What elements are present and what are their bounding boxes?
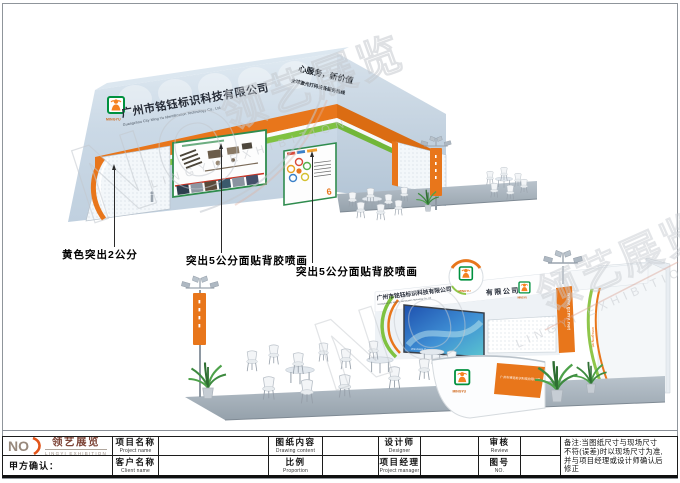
design-sheet: 6 MINGYU 广州市铭钰标识科技有限公司 Guangzhou City Mi… (0, 0, 680, 483)
label-designer: 设计师 Designer (379, 437, 421, 456)
value-proportion (323, 456, 379, 475)
label-proportion: 比例 Proportion (269, 456, 323, 475)
notes-cell: 备注:当图纸尺寸与现场尺寸 不符(误差)时以现场尺寸为准, 并与项目经理或设计师… (561, 437, 677, 475)
booth-renderings: 6 MINGYU 广州市铭钰标识科技有限公司 Guangzhou City Mi… (0, 0, 680, 430)
party-a-confirm: 甲方确认： (3, 456, 113, 475)
value-drawing-no (521, 456, 561, 475)
light-totem-bottom (181, 276, 226, 399)
label-project-name: 项目名称 Project name (113, 437, 159, 456)
annotation-label-1: 黄色突出2公分 (62, 247, 138, 262)
mingyu-logo-fascia (519, 282, 530, 293)
value-designer (421, 437, 479, 456)
label-review: 审核 Review (479, 437, 521, 456)
title-block: NO 领艺展览 LINGYI EXHIBITION 项目名称 Project n… (2, 436, 678, 478)
brand-cn: 领艺展览 (52, 437, 100, 448)
logo-text-fascia: MINGYU (518, 297, 528, 300)
value-review (521, 437, 561, 456)
leader-line-1 (114, 170, 115, 247)
leader-line-3 (312, 157, 313, 263)
website-vertical-small: www.gzmy.net (591, 327, 595, 347)
label-drawing-content: 图纸内容 Drawing content (269, 437, 323, 456)
logo-text-desk: MINGYU (453, 390, 467, 394)
brand-logo: NO 领艺展览 LINGYI EXHIBITION (8, 437, 107, 456)
value-project-manager (421, 456, 479, 475)
annotation-label-3: 突出5公分面贴背胶喷画 (296, 264, 418, 279)
value-client-name (159, 456, 269, 475)
brand-en: LINGYI EXHIBITION (45, 449, 107, 456)
label-drawing-no: 图号 NO. (479, 456, 521, 475)
brand-logo-cell: NO 领艺展览 LINGYI EXHIBITION (3, 437, 113, 456)
brand-no-letters: NO (8, 438, 29, 454)
leader-line-2 (221, 149, 222, 253)
annotation-label-2: 突出5公分面贴背胶喷画 (186, 253, 308, 268)
label-project-manager: 项目经理 Project manager (379, 456, 421, 475)
brand-swoosh-icon (31, 437, 43, 455)
label-client-name: 客户名称 Client name (113, 456, 159, 475)
value-drawing-content (323, 437, 379, 456)
value-project-name (159, 437, 269, 456)
drawing-area-divider (2, 430, 678, 431)
